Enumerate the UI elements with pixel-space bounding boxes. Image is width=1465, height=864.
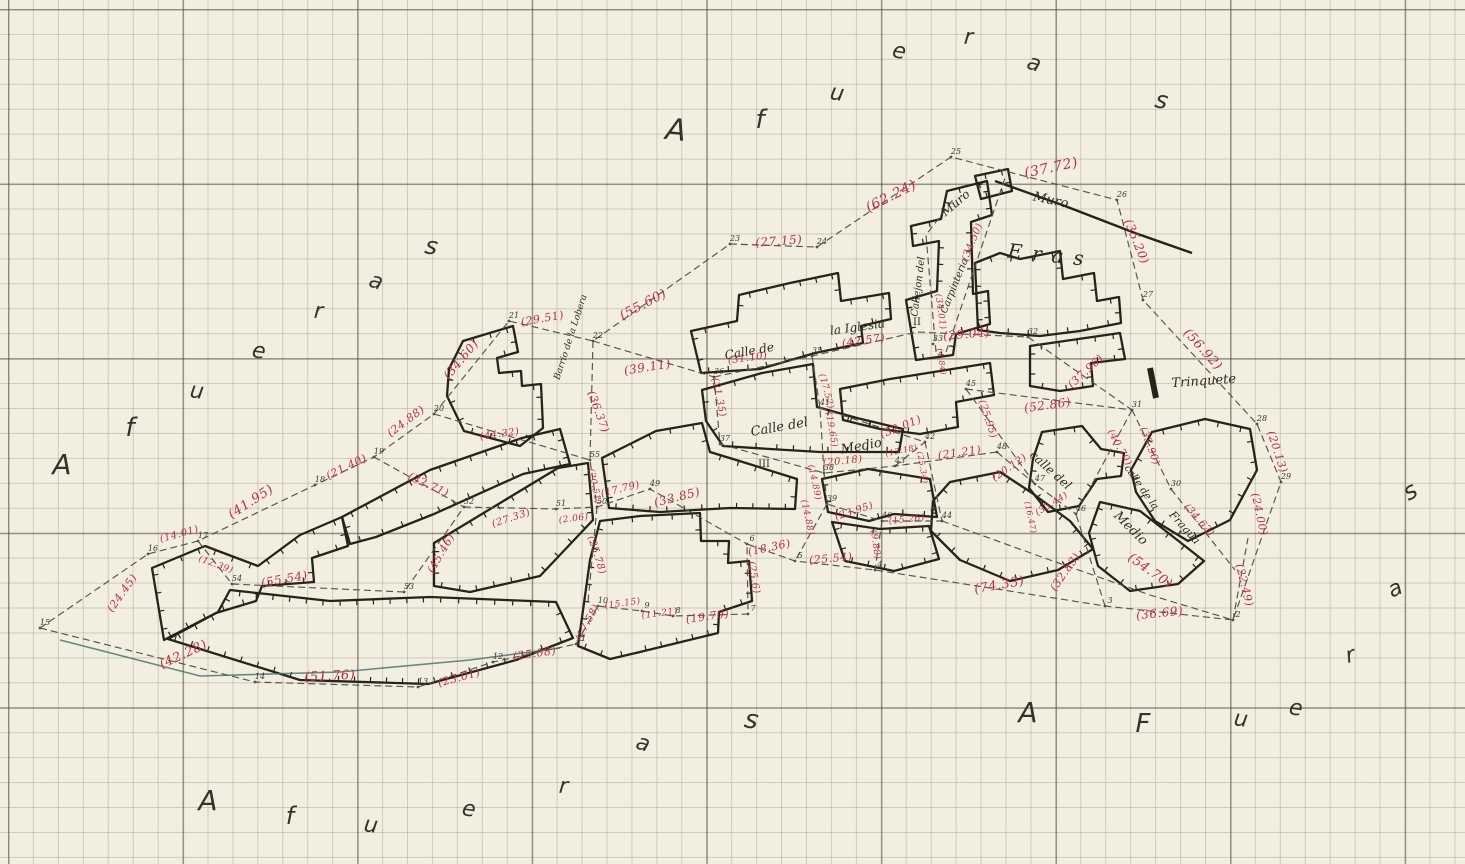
measurement-label: (19.65) [823, 411, 840, 449]
afueras-letter: a [1384, 575, 1407, 603]
traverse-layer [40, 157, 1281, 687]
station-dot [932, 343, 935, 346]
afueras-letter: r [963, 25, 976, 51]
station-dot [894, 465, 897, 468]
station-dot [147, 553, 150, 556]
measurement-label: (21.40) [324, 451, 369, 482]
station-number: 49 [649, 479, 660, 488]
measurement-label: (14.88) [798, 499, 816, 537]
station-number: 52 [464, 497, 474, 506]
station-dot [1256, 423, 1259, 426]
station-dot [649, 488, 652, 491]
station-number: 46 [1075, 504, 1086, 513]
station-dot [874, 569, 877, 572]
station-number: 13 [418, 677, 428, 686]
afueras-letter: F [1136, 709, 1152, 739]
measurement-label: (14.89) [805, 464, 823, 502]
measurement-label: (17.58) [574, 603, 602, 643]
measurement-label: (42.28) [157, 637, 209, 672]
measurement-label: (54.70) [1125, 550, 1175, 591]
station-dot [1104, 605, 1107, 608]
afueras-letter: s [423, 231, 440, 261]
station-dot [996, 451, 999, 454]
street-name-carpinteria: Carpinteria [939, 257, 971, 315]
measurement-label: (52.86) [1023, 395, 1072, 415]
station-number: 17 [198, 531, 209, 540]
measurement-label: (74.33) [973, 574, 1026, 598]
measurement-label: (21.21) [937, 443, 982, 462]
afueras-letter: A [50, 448, 71, 481]
stations-layer: 2345678910111213141516171819202122232425… [39, 147, 1291, 688]
afueras-letter: r [558, 774, 571, 800]
station-dot [719, 443, 722, 446]
measurement-label: (16.47) [1023, 501, 1039, 535]
place-name-eras: Eras [1006, 238, 1095, 271]
station-dot [1027, 336, 1030, 339]
station-number: 53 [404, 582, 414, 591]
station-dot [508, 320, 511, 323]
station-dot [231, 583, 234, 586]
station-number: 45 [965, 379, 976, 388]
station-number: 2 [1234, 610, 1240, 619]
station-dot [811, 355, 814, 358]
street-name: calle de la [1122, 463, 1161, 512]
station-number: 6 [749, 534, 754, 543]
station-dot [39, 627, 42, 630]
station-number: 30 [1171, 479, 1181, 488]
station-dot [950, 156, 953, 159]
station-number: 37 [720, 434, 731, 443]
station-number: 20 [433, 404, 444, 413]
measurement-label: (27.33) [491, 507, 532, 530]
afueras-letter: r [313, 299, 326, 325]
block-numeral: II [913, 317, 921, 328]
station-dot [823, 472, 826, 475]
afueras-letter: s [1153, 85, 1171, 115]
station-dot [924, 441, 927, 444]
station-number: 51 [556, 499, 566, 508]
measurement-label: (33.44) [1033, 490, 1070, 519]
afueras-letter: a [366, 268, 387, 296]
measurement-label: (2.06) [558, 511, 589, 526]
station-number: 33 [933, 334, 943, 343]
station-number: 7 [750, 604, 756, 613]
station-dot [729, 243, 732, 246]
station-number: 18 [315, 475, 325, 484]
station-number: 36 [714, 367, 724, 376]
street-name: calle del [1027, 448, 1074, 493]
measurement-label: (29.51) [520, 308, 565, 328]
measurements-layer: (37.72)(62.24)(27.15)(35.20)(56.92)(20.1… [104, 155, 1290, 690]
station-number: 54 [232, 574, 242, 583]
station-dot [575, 643, 578, 646]
street-name: Trinquete [1171, 372, 1237, 391]
station-number: 44 [941, 511, 952, 520]
afueras-letter: A [1016, 696, 1037, 729]
afueras-letter: s [1398, 476, 1423, 507]
measurement-label: (29.04) [943, 325, 991, 343]
afueras-letter: u [1232, 706, 1249, 733]
measurement-label: (24.45) [104, 571, 140, 614]
station-number: 27 [1142, 290, 1154, 299]
station-dot [1142, 299, 1145, 302]
afueras-letter: f [755, 105, 768, 135]
station-number: 9 [644, 601, 649, 610]
measurement-label: (23.01) [436, 666, 481, 690]
measurement-label: (36.37) [585, 389, 612, 434]
measurement-label: (36.69) [1135, 604, 1183, 623]
afueras-letter: r [1343, 642, 1360, 669]
afueras-letter: a [1024, 50, 1045, 78]
measurement-label: (24.00) [1249, 492, 1271, 537]
station-dot [433, 413, 436, 416]
measurement-label: (20.51) [585, 468, 603, 506]
station-number: 25 [950, 147, 961, 156]
street-name: Callejon del [909, 256, 927, 317]
station-number: 21 [508, 311, 519, 320]
station-number: 19 [374, 447, 384, 456]
station-number: 55 [590, 450, 600, 459]
measurement-label: (41.95) [226, 482, 277, 522]
measurement-label: (22.49) [1233, 562, 1256, 607]
measurement-label: (19.70) [685, 607, 730, 626]
station-dot [1116, 199, 1119, 202]
station-dot [492, 661, 495, 664]
measurement-label: (25.6) [745, 560, 762, 594]
station-dot [417, 686, 420, 689]
afueras-letter: e [460, 796, 477, 823]
station-dot [1075, 513, 1078, 516]
measurement-label: (23.95) [834, 500, 875, 523]
station-dot [1232, 619, 1235, 622]
station-dot [403, 591, 406, 594]
station-number: 22 [592, 331, 603, 340]
station-number: 28 [1256, 414, 1267, 423]
measurement-label: (24.88) [385, 403, 428, 440]
station-number: 32 [1028, 327, 1038, 336]
wall-hatch-ticks [579, 513, 751, 656]
afueras-letter: f [286, 802, 298, 830]
measurement-label: (51.76) [304, 668, 356, 686]
station-dot [592, 340, 595, 343]
measurement-label: (55.60) [617, 286, 669, 323]
afueras-letter: u [362, 812, 379, 839]
street-name: Barrio de la Lobera [552, 294, 589, 383]
map-canvas: 2345678910111213141516171819202122232425… [0, 0, 1465, 864]
station-number: 12 [493, 652, 503, 661]
station-dot [1131, 409, 1134, 412]
station-dot [314, 484, 317, 487]
building-outline [447, 326, 543, 446]
station-dot [197, 540, 200, 543]
station-number: 4 [876, 560, 882, 569]
station-number: 14 [255, 672, 265, 681]
measurement-label: (39.11) [623, 356, 672, 377]
station-number: 31 [1132, 400, 1142, 409]
afueras-letter: s [742, 704, 761, 736]
station-dot [794, 560, 797, 563]
station-number: 43 [894, 456, 905, 465]
station-number: 16 [148, 544, 158, 553]
measurement-label: (34.50) [960, 221, 985, 262]
station-number: 47 [1034, 474, 1046, 483]
station-dot [1280, 481, 1283, 484]
measurement-label: (35.20) [1121, 217, 1152, 266]
measurement-label: (25.54) [808, 550, 853, 567]
station-number: 42 [924, 432, 935, 441]
station-number: 23 [729, 234, 740, 243]
station-number: 3 [1107, 596, 1112, 605]
station-number: 35 [812, 346, 822, 355]
station-dot [373, 456, 376, 459]
traverse-line [40, 157, 1281, 687]
station-dot [463, 506, 466, 509]
measurement-label: (12.39) [197, 553, 235, 576]
station-number: 24 [816, 237, 827, 246]
block-numeral: III [758, 459, 770, 470]
measurement-label: (25.95) [976, 399, 999, 440]
station-dot [254, 681, 257, 684]
edge-letters-layer: AfuerasAfuerasAfuerasAFueras [50, 25, 1422, 839]
station-number: 15 [40, 618, 50, 627]
measurement-label: (27.15) [755, 232, 803, 249]
measurement-label: (37.72) [1023, 155, 1080, 182]
station-dot [819, 407, 822, 410]
survey-map-sheet: 2345678910111213141516171819202122232425… [0, 0, 1465, 864]
building-outline [578, 513, 752, 659]
street-name: Calle del [750, 415, 810, 440]
station-dot [881, 520, 884, 523]
afueras-letter: a [633, 730, 654, 758]
street-name: Muro [1031, 189, 1070, 211]
station-number: 26 [1116, 190, 1127, 199]
station-number: 5 [797, 551, 802, 560]
afueras-letter: u [828, 80, 846, 107]
station-number: 39 [827, 494, 837, 503]
measurement-label: (32.71) [406, 470, 451, 500]
measurement-label: (33.85) [652, 485, 701, 510]
station-dot [589, 459, 592, 462]
station-dot [555, 508, 558, 511]
afueras-letter: e [1287, 695, 1304, 722]
measurement-label: (25.08) [512, 644, 557, 663]
afueras-letter: e [250, 338, 267, 365]
station-dot [1034, 483, 1037, 486]
afueras-letter: A [662, 112, 688, 149]
measurement-label: (56.92) [1180, 326, 1225, 374]
station-dot [816, 246, 819, 249]
station-dot [596, 506, 599, 509]
station-dot [941, 520, 944, 523]
station-number: 48 [996, 442, 1007, 451]
building-outline [434, 463, 593, 592]
station-dot [747, 613, 750, 616]
measurement-label: (62.24) [863, 177, 919, 216]
measurement-label: (37.96) [1065, 352, 1106, 391]
station-dot [826, 503, 829, 506]
wall-line [1150, 368, 1156, 398]
street-name: Muro [938, 187, 973, 220]
afueras-letter: u [188, 378, 205, 405]
afueras-letter: e [890, 38, 908, 65]
station-dot [1170, 488, 1173, 491]
station-dot [965, 388, 968, 391]
afueras-letter: A [196, 784, 217, 817]
afueras-letter: f [125, 413, 138, 443]
